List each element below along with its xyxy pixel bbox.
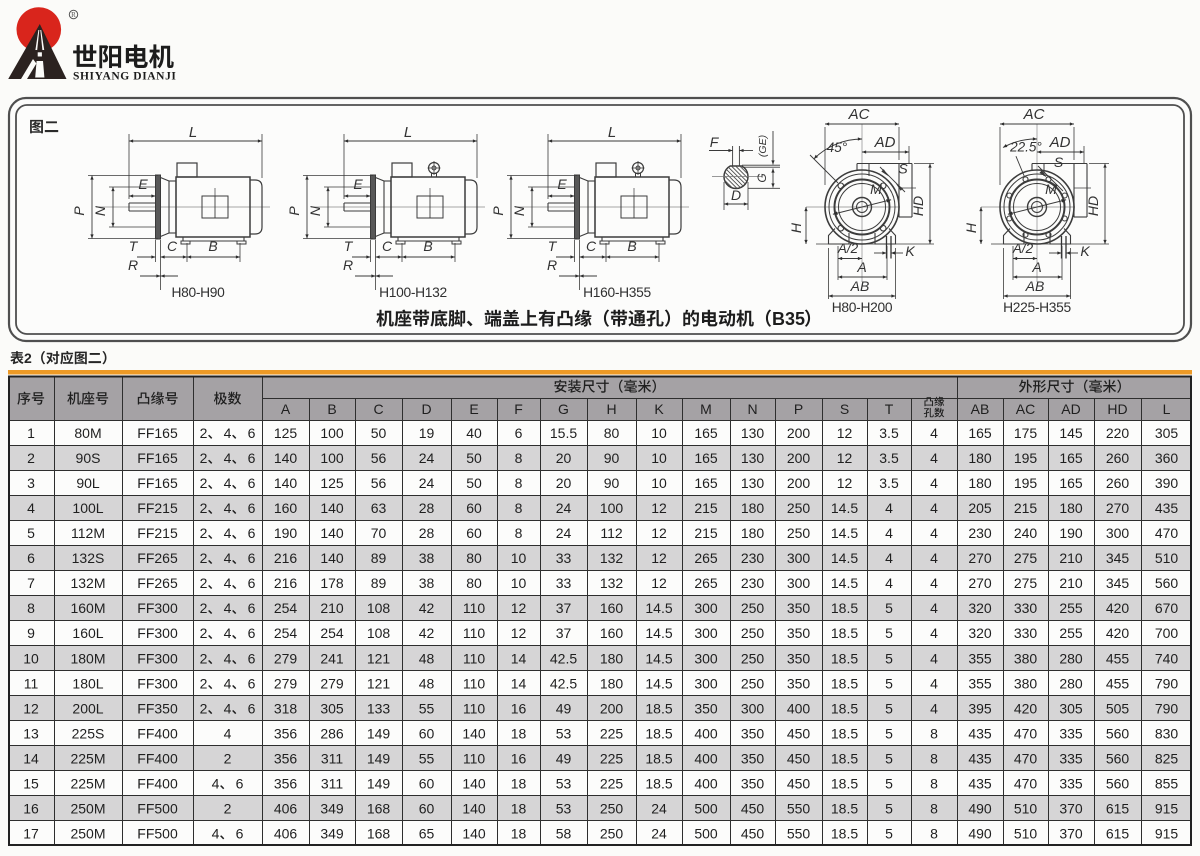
svg-text:311: 311 (321, 775, 344, 791)
svg-text:16: 16 (511, 750, 527, 766)
svg-text:165: 165 (694, 425, 718, 441)
svg-text:8: 8 (930, 826, 938, 842)
svg-text:830: 830 (1155, 725, 1179, 741)
svg-text:65: 65 (419, 826, 435, 842)
svg-text:140: 140 (462, 826, 486, 842)
svg-text:180: 180 (968, 450, 992, 466)
svg-text:350: 350 (741, 775, 765, 791)
svg-text:24: 24 (419, 475, 435, 491)
svg-text:311: 311 (321, 750, 344, 766)
svg-text:406: 406 (274, 826, 298, 842)
svg-text:510: 510 (1014, 826, 1038, 842)
svg-text:320: 320 (968, 600, 992, 616)
svg-text:4: 4 (224, 600, 232, 616)
svg-text:4: 4 (224, 550, 232, 566)
svg-text:14.5: 14.5 (831, 550, 858, 566)
svg-text:12: 12 (23, 700, 39, 716)
svg-text:38: 38 (419, 550, 435, 566)
svg-text:132S: 132S (72, 550, 105, 566)
svg-text:4: 4 (224, 725, 232, 741)
svg-text:400: 400 (694, 775, 718, 791)
svg-text:HD: HD (1085, 196, 1101, 216)
svg-text:49: 49 (556, 700, 572, 716)
svg-text:145: 145 (1059, 425, 1083, 441)
svg-text:3.5: 3.5 (879, 450, 899, 466)
svg-text:420: 420 (1106, 625, 1130, 641)
svg-text:89: 89 (371, 575, 387, 591)
svg-text:4: 4 (224, 625, 232, 641)
svg-text:260: 260 (1106, 450, 1130, 466)
svg-text:270: 270 (968, 575, 992, 591)
svg-text:T: T (129, 238, 139, 254)
svg-text:300: 300 (741, 700, 765, 716)
svg-text:4: 4 (224, 500, 232, 516)
svg-text:90L: 90L (76, 475, 100, 491)
svg-text:2: 2 (200, 675, 208, 691)
svg-text:6: 6 (236, 775, 244, 791)
svg-text:4: 4 (930, 575, 938, 591)
svg-text:500: 500 (694, 801, 718, 817)
svg-text:100: 100 (320, 450, 344, 466)
svg-text:14: 14 (511, 675, 527, 691)
svg-text:168: 168 (367, 801, 391, 817)
svg-text:140: 140 (274, 450, 298, 466)
svg-text:14.5: 14.5 (831, 575, 858, 591)
svg-text:7: 7 (27, 575, 35, 591)
svg-text:14.5: 14.5 (645, 600, 672, 616)
svg-text:4: 4 (224, 700, 232, 716)
svg-text:H: H (963, 222, 979, 233)
svg-text:AB: AB (971, 401, 990, 417)
svg-text:210: 210 (1059, 550, 1083, 566)
svg-text:B: B (327, 401, 336, 417)
svg-text:40: 40 (466, 425, 482, 441)
svg-text:350: 350 (741, 750, 765, 766)
svg-text:180L: 180L (72, 675, 103, 691)
svg-text:2: 2 (27, 450, 35, 466)
svg-text:5: 5 (27, 525, 35, 541)
svg-text:5: 5 (885, 625, 893, 641)
svg-text:4: 4 (224, 450, 232, 466)
svg-text:180M: 180M (70, 650, 105, 666)
svg-text:406: 406 (274, 801, 298, 817)
svg-text:165: 165 (1059, 475, 1083, 491)
svg-text:160: 160 (600, 625, 624, 641)
svg-text:435: 435 (968, 775, 992, 791)
svg-text:470: 470 (1155, 525, 1179, 541)
svg-text:356: 356 (274, 750, 298, 766)
svg-text:K: K (654, 401, 664, 417)
svg-text:345: 345 (1106, 575, 1130, 591)
svg-text:42: 42 (419, 600, 435, 616)
svg-text:6: 6 (248, 500, 256, 516)
svg-text:110: 110 (463, 750, 486, 766)
svg-text:255: 255 (1059, 625, 1083, 641)
svg-text:5: 5 (885, 650, 893, 666)
svg-text:395: 395 (968, 700, 992, 716)
svg-text:510: 510 (1155, 550, 1179, 566)
svg-text:6: 6 (248, 550, 256, 566)
svg-text:18.5: 18.5 (831, 826, 858, 842)
svg-text:254: 254 (274, 625, 298, 641)
svg-text:AD: AD (1061, 401, 1080, 417)
svg-text:190: 190 (1059, 525, 1083, 541)
svg-text:560: 560 (1106, 775, 1130, 791)
svg-text:200L: 200L (72, 700, 103, 716)
svg-text:B35: B35 (772, 309, 805, 329)
svg-text:740: 740 (1155, 650, 1179, 666)
svg-text:F: F (710, 134, 720, 150)
svg-text:C: C (373, 401, 383, 417)
svg-text:825: 825 (1155, 750, 1179, 766)
svg-text:8: 8 (515, 500, 523, 516)
svg-text:24: 24 (651, 826, 667, 842)
svg-text:250: 250 (741, 675, 765, 691)
svg-text:435: 435 (968, 725, 992, 741)
svg-text:5: 5 (885, 600, 893, 616)
svg-text:12: 12 (651, 500, 667, 516)
svg-text:42.5: 42.5 (550, 650, 577, 666)
svg-text:330: 330 (1014, 625, 1038, 641)
svg-text:210: 210 (1059, 575, 1083, 591)
svg-text:200: 200 (600, 700, 624, 716)
svg-text:14: 14 (511, 650, 527, 666)
svg-text:225S: 225S (72, 725, 105, 741)
svg-text:300: 300 (694, 625, 718, 641)
svg-text:350: 350 (787, 600, 811, 616)
svg-text:P: P (71, 206, 87, 216)
svg-text:14: 14 (23, 750, 39, 766)
svg-text:18.5: 18.5 (831, 725, 858, 741)
svg-text:165: 165 (1059, 450, 1083, 466)
svg-text:R: R (71, 11, 76, 19)
svg-text:550: 550 (787, 801, 811, 817)
svg-text:60: 60 (466, 500, 482, 516)
svg-text:165: 165 (968, 425, 992, 441)
svg-text:50: 50 (466, 475, 482, 491)
svg-text:360: 360 (1155, 450, 1179, 466)
svg-text:390: 390 (1155, 475, 1179, 491)
svg-text:450: 450 (787, 775, 811, 791)
svg-text:6: 6 (248, 475, 256, 491)
svg-text:790: 790 (1155, 700, 1179, 716)
svg-text:T: T (548, 238, 558, 254)
svg-text:8: 8 (515, 475, 523, 491)
svg-text:48: 48 (419, 650, 435, 666)
svg-text:335: 335 (1059, 725, 1083, 741)
svg-text:149: 149 (367, 775, 391, 791)
svg-text:18.5: 18.5 (831, 801, 858, 817)
svg-text:3.5: 3.5 (879, 425, 899, 441)
svg-text:4: 4 (930, 550, 938, 566)
svg-text:216: 216 (274, 550, 298, 566)
svg-text:300: 300 (787, 550, 811, 566)
svg-text:10: 10 (511, 550, 527, 566)
svg-text:400: 400 (694, 750, 718, 766)
svg-text:215: 215 (694, 500, 718, 516)
svg-text:300: 300 (694, 675, 718, 691)
svg-text:250: 250 (741, 600, 765, 616)
svg-text:510: 510 (1014, 801, 1038, 817)
svg-text:560: 560 (1106, 725, 1130, 741)
svg-text:FF400: FF400 (137, 750, 178, 766)
svg-text:FF500: FF500 (137, 826, 178, 842)
svg-text:300: 300 (694, 600, 718, 616)
svg-text:48: 48 (419, 675, 435, 691)
svg-text:4: 4 (930, 650, 938, 666)
svg-text:A: A (856, 259, 866, 275)
svg-text:AD: AD (874, 134, 896, 151)
svg-text:2: 2 (200, 450, 208, 466)
svg-text:370: 370 (1059, 826, 1083, 842)
svg-text:6: 6 (248, 650, 256, 666)
svg-text:335: 335 (1059, 750, 1083, 766)
svg-text:133: 133 (367, 700, 391, 716)
svg-text:70: 70 (371, 525, 387, 541)
svg-text:P: P (286, 206, 302, 216)
svg-text:160: 160 (600, 600, 624, 616)
svg-text:12: 12 (651, 525, 667, 541)
svg-text:2: 2 (200, 625, 208, 641)
svg-text:H225-H355: H225-H355 (1003, 300, 1071, 315)
svg-text:8: 8 (515, 525, 523, 541)
svg-text:56: 56 (371, 475, 387, 491)
svg-text:24: 24 (556, 525, 572, 541)
svg-text:216: 216 (274, 575, 298, 591)
svg-text:14.5: 14.5 (645, 675, 672, 691)
svg-text:N: N (92, 205, 108, 216)
svg-text:5: 5 (885, 826, 893, 842)
svg-text:22.5°: 22.5° (1009, 140, 1042, 155)
svg-text:130: 130 (741, 475, 765, 491)
svg-text:470: 470 (1014, 750, 1038, 766)
svg-text:D: D (421, 401, 431, 417)
svg-text:6: 6 (248, 700, 256, 716)
svg-text:180: 180 (741, 525, 765, 541)
svg-text:450: 450 (787, 750, 811, 766)
svg-text:300: 300 (787, 575, 811, 591)
svg-text:24: 24 (419, 450, 435, 466)
svg-text:4: 4 (930, 600, 938, 616)
svg-text:5: 5 (885, 675, 893, 691)
svg-text:240: 240 (1014, 525, 1038, 541)
svg-text:300: 300 (694, 650, 718, 666)
svg-text:6: 6 (515, 425, 523, 441)
svg-text:190: 190 (274, 525, 298, 541)
svg-text:H: H (788, 222, 804, 233)
svg-text:80: 80 (604, 425, 620, 441)
svg-text:5: 5 (885, 725, 893, 741)
svg-text:450: 450 (787, 725, 811, 741)
svg-text:380: 380 (1014, 650, 1038, 666)
svg-text:18.5: 18.5 (645, 725, 672, 741)
svg-text:18.5: 18.5 (831, 625, 858, 641)
svg-text:14.5: 14.5 (645, 650, 672, 666)
svg-text:254: 254 (274, 600, 298, 616)
svg-text:318: 318 (274, 700, 298, 716)
svg-text:18.5: 18.5 (831, 750, 858, 766)
svg-text:4: 4 (224, 475, 232, 491)
svg-text:24: 24 (651, 801, 667, 817)
svg-text:E: E (353, 176, 363, 192)
svg-text:140: 140 (462, 801, 486, 817)
svg-text:108: 108 (367, 600, 391, 616)
svg-text:355: 355 (968, 675, 992, 691)
svg-text:6: 6 (236, 826, 244, 842)
svg-text:165: 165 (694, 475, 718, 491)
svg-text:2: 2 (200, 500, 208, 516)
svg-text:8: 8 (27, 600, 35, 616)
svg-text:12: 12 (837, 475, 853, 491)
svg-text:12: 12 (651, 575, 667, 591)
svg-text:349: 349 (320, 801, 344, 817)
svg-text:470: 470 (1014, 725, 1038, 741)
svg-text:33: 33 (556, 550, 572, 566)
svg-text:15: 15 (23, 775, 39, 791)
svg-text:4: 4 (224, 675, 232, 691)
svg-text:6: 6 (248, 525, 256, 541)
svg-text:FF165: FF165 (137, 425, 178, 441)
svg-text:250: 250 (787, 525, 811, 541)
svg-text:2: 2 (200, 425, 208, 441)
svg-text:60: 60 (466, 525, 482, 541)
svg-text:14.5: 14.5 (645, 625, 672, 641)
svg-text:356: 356 (274, 775, 298, 791)
svg-text:915: 915 (1155, 801, 1179, 817)
svg-text:225: 225 (600, 725, 624, 741)
svg-text:90: 90 (604, 475, 620, 491)
svg-text:108: 108 (367, 625, 391, 641)
svg-text:230: 230 (741, 550, 765, 566)
svg-text:80M: 80M (74, 425, 101, 441)
svg-text:200: 200 (787, 425, 811, 441)
svg-text:2: 2 (224, 801, 232, 817)
svg-text:210: 210 (320, 600, 344, 616)
svg-text:56: 56 (371, 450, 387, 466)
svg-text:6: 6 (248, 575, 256, 591)
svg-text:200: 200 (787, 475, 811, 491)
svg-text:A/2: A/2 (837, 241, 859, 256)
svg-text:470: 470 (1014, 775, 1038, 791)
svg-text:18.5: 18.5 (831, 600, 858, 616)
svg-text:4: 4 (224, 425, 232, 441)
svg-text:915: 915 (1155, 826, 1179, 842)
svg-text:FF265: FF265 (137, 550, 178, 566)
svg-text:FF300: FF300 (137, 600, 178, 616)
svg-text:175: 175 (1014, 425, 1038, 441)
svg-text:435: 435 (968, 750, 992, 766)
svg-text:286: 286 (320, 725, 344, 741)
svg-text:80: 80 (466, 575, 482, 591)
svg-text:5: 5 (885, 700, 893, 716)
svg-text:180: 180 (600, 675, 624, 691)
svg-text:P: P (490, 206, 506, 216)
svg-text:4: 4 (930, 500, 938, 516)
svg-text:110: 110 (463, 675, 486, 691)
svg-text:350: 350 (787, 675, 811, 691)
svg-text:R: R (128, 257, 138, 273)
svg-text:4: 4 (930, 475, 938, 491)
svg-text:265: 265 (694, 575, 718, 591)
svg-text:24: 24 (556, 500, 572, 516)
svg-text:550: 550 (787, 826, 811, 842)
svg-text:280: 280 (1059, 675, 1083, 691)
svg-text:50: 50 (466, 450, 482, 466)
svg-text:D: D (731, 187, 741, 203)
svg-text:400: 400 (787, 700, 811, 716)
svg-text:225: 225 (600, 775, 624, 791)
svg-text:110: 110 (463, 700, 486, 716)
svg-text:90: 90 (604, 450, 620, 466)
svg-text:53: 53 (556, 725, 572, 741)
svg-text:300: 300 (1106, 525, 1130, 541)
svg-text:B: B (423, 238, 432, 254)
svg-text:AC: AC (848, 106, 870, 123)
svg-text:FF215: FF215 (137, 500, 178, 516)
svg-text:G: G (558, 401, 569, 417)
svg-text:AC: AC (1016, 401, 1035, 417)
svg-text:FF165: FF165 (137, 450, 178, 466)
svg-text:130: 130 (741, 450, 765, 466)
svg-text:100L: 100L (72, 500, 103, 516)
svg-text:M: M (870, 181, 882, 197)
svg-text:255: 255 (1059, 600, 1083, 616)
svg-text:10: 10 (23, 650, 39, 666)
svg-text:63: 63 (371, 500, 387, 516)
svg-text:250M: 250M (70, 801, 105, 817)
svg-text:K: K (905, 243, 915, 259)
svg-text:N: N (747, 401, 757, 417)
svg-text:12: 12 (837, 425, 853, 441)
svg-text:400: 400 (694, 725, 718, 741)
svg-text:490: 490 (968, 801, 992, 817)
svg-text:18.5: 18.5 (831, 650, 858, 666)
svg-text:160: 160 (274, 500, 298, 516)
svg-text:250: 250 (600, 801, 624, 817)
svg-text:225M: 225M (70, 750, 105, 766)
svg-text:FF500: FF500 (137, 801, 178, 817)
svg-text:42: 42 (419, 625, 435, 641)
svg-text:112M: 112M (71, 525, 105, 541)
svg-text:53: 53 (556, 775, 572, 791)
svg-text:18.5: 18.5 (831, 675, 858, 691)
svg-text:160M: 160M (70, 600, 105, 616)
svg-text:28: 28 (419, 525, 435, 541)
svg-text:FF400: FF400 (137, 725, 178, 741)
svg-text:H80-H90: H80-H90 (171, 285, 225, 300)
svg-text:100: 100 (320, 425, 344, 441)
svg-text:14.5: 14.5 (831, 525, 858, 541)
svg-text:4: 4 (930, 425, 938, 441)
svg-text:168: 168 (367, 826, 391, 842)
svg-text:455: 455 (1106, 650, 1130, 666)
svg-text:53: 53 (556, 801, 572, 817)
svg-text:6: 6 (248, 450, 256, 466)
svg-text:4: 4 (224, 525, 232, 541)
svg-text:700: 700 (1155, 625, 1179, 641)
svg-text:FF350: FF350 (137, 700, 178, 716)
svg-text:6: 6 (248, 425, 256, 441)
svg-text:140: 140 (320, 525, 344, 541)
svg-text:AD: AD (1049, 134, 1071, 151)
svg-text:140: 140 (462, 775, 486, 791)
svg-text:205: 205 (968, 500, 992, 516)
svg-text:4: 4 (885, 500, 893, 516)
svg-text:20: 20 (556, 475, 572, 491)
svg-text:E: E (138, 176, 148, 192)
svg-text:220: 220 (1106, 425, 1130, 441)
svg-text:356: 356 (274, 725, 298, 741)
